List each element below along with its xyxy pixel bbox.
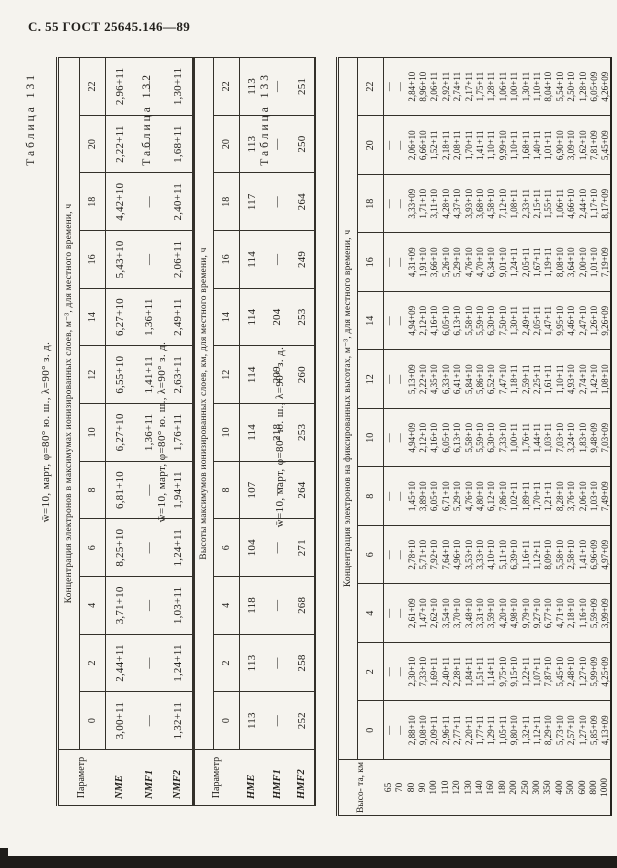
table-cell: 1,91+10 bbox=[417, 233, 428, 292]
table-cell: 3,24+10 bbox=[565, 409, 576, 468]
table-cell: 1,06+11 bbox=[497, 57, 508, 116]
table-cell: 7,33+10 bbox=[497, 409, 508, 468]
table-cell: 1,67+11 bbox=[531, 233, 542, 292]
time-header: 14 bbox=[357, 292, 383, 351]
table-cell: 1,29+11 bbox=[486, 701, 497, 760]
table-cell: 6,34+10 bbox=[486, 233, 497, 292]
table-cell: 1,16+11 bbox=[520, 526, 531, 585]
table-cell: 9,48+09 bbox=[588, 409, 599, 468]
table-133: Высо- та, кмКонцентрация электронов на ф… bbox=[336, 57, 612, 816]
table-cell: 1,14+11 bbox=[486, 643, 497, 702]
table-cell: — bbox=[395, 116, 406, 175]
table-cell: 5,86+10 bbox=[474, 350, 485, 409]
table-cell: 1,27+10 bbox=[577, 701, 588, 760]
table-cell: 2,44+11 bbox=[105, 634, 134, 692]
table-cell: 5,29+10 bbox=[452, 467, 463, 526]
table-cell: 5,58+10 bbox=[463, 409, 474, 468]
table-cell: — bbox=[383, 175, 394, 234]
table-cell: 1,02+11 bbox=[508, 467, 519, 526]
table-cell: 2,28+11 bbox=[452, 643, 463, 702]
time-header: 6 bbox=[213, 519, 239, 577]
row-label: 180 bbox=[497, 760, 508, 816]
time-header: 22 bbox=[357, 57, 383, 116]
table-cell: 3,33+09 bbox=[406, 175, 417, 234]
table-cell: 4,28+10 bbox=[440, 175, 451, 234]
table-cell: 1,62+10 bbox=[577, 116, 588, 175]
page-header: С. 55 ГОСТ 25645.146—89 bbox=[28, 19, 190, 35]
table-cell: 5,59+10 bbox=[474, 409, 485, 468]
table-cell: 4,26+09 bbox=[600, 57, 611, 116]
table-cell: 2,17+11 bbox=[463, 57, 474, 116]
table-cell: — bbox=[383, 467, 394, 526]
table-cell: 2,49+11 bbox=[520, 292, 531, 351]
table-cell: 7,12+10 bbox=[497, 175, 508, 234]
table-cell: 2,09+11 bbox=[429, 701, 440, 760]
time-header: 4 bbox=[357, 584, 383, 643]
table-cell: 6,81+10 bbox=[105, 461, 134, 519]
table-cell: 5,71+10 bbox=[417, 526, 428, 585]
table-cell: 2,25+11 bbox=[531, 350, 542, 409]
table-cell: 7,86+10 bbox=[497, 467, 508, 526]
table-cell: 7,64+10 bbox=[440, 526, 451, 585]
table-cell: 2,48+10 bbox=[565, 643, 576, 702]
time-header: 16 bbox=[357, 233, 383, 292]
table-cell: 4,16+10 bbox=[429, 292, 440, 351]
time-header: 12 bbox=[357, 350, 383, 409]
table-cell: — bbox=[395, 467, 406, 526]
table-cell: 1,10+11 bbox=[508, 116, 519, 175]
table-cell: 3,31+10 bbox=[474, 584, 485, 643]
row-label: 200 bbox=[508, 760, 519, 816]
table-cell: 8,08+10 bbox=[554, 233, 565, 292]
table-cell: 1,10+11 bbox=[486, 116, 497, 175]
table-cell: 6,90+10 bbox=[554, 116, 565, 175]
table-cell: 5,29+10 bbox=[452, 233, 463, 292]
table-cell: 1,84+11 bbox=[463, 643, 474, 702]
table-cell: 4,37+10 bbox=[452, 175, 463, 234]
table-cell: — bbox=[395, 643, 406, 702]
table-cell: 3,66+10 bbox=[429, 233, 440, 292]
table-cell: 6,30+10 bbox=[486, 409, 497, 468]
table-cell: 5,59+10 bbox=[474, 292, 485, 351]
table-cell: 6,39+10 bbox=[508, 526, 519, 585]
table-cell: 2,88+10 bbox=[406, 701, 417, 760]
time-header: 12 bbox=[79, 346, 105, 404]
span-header: Концентрация электронов на фиксированных… bbox=[337, 57, 357, 759]
time-header: 18 bbox=[79, 173, 105, 231]
row-label: 65 bbox=[383, 760, 394, 816]
table-cell: 3,64+10 bbox=[565, 233, 576, 292]
table-cell: 9,26+09 bbox=[600, 292, 611, 351]
table-cell: 4,71+10 bbox=[554, 584, 565, 643]
table-cell: 1,01+11 bbox=[543, 116, 554, 175]
table-cell: 2,05+11 bbox=[520, 233, 531, 292]
row-label: 110 bbox=[440, 760, 451, 816]
table-cell: 2,57+10 bbox=[565, 701, 576, 760]
table-cell: 4,46+10 bbox=[565, 292, 576, 351]
time-header: 22 bbox=[213, 58, 239, 116]
table-cell: 5,58+10 bbox=[554, 526, 565, 585]
table-cell: 4,70+10 bbox=[474, 233, 485, 292]
time-header: 4 bbox=[213, 577, 239, 635]
table-133-caption: Таблица 133 bbox=[258, 58, 272, 816]
table-cell: 2,33+11 bbox=[520, 175, 531, 234]
table-cell: 4,96+10 bbox=[452, 526, 463, 585]
table-cell: 2,58+10 bbox=[565, 526, 576, 585]
time-header: 4 bbox=[79, 577, 105, 635]
table-cell: 8,25+10 bbox=[105, 519, 134, 577]
table-cell: 6,05+10 bbox=[429, 467, 440, 526]
table-132-caption: Таблица 132 bbox=[140, 58, 154, 806]
table-cell: — bbox=[383, 116, 394, 175]
table-cell: 7,81+09 bbox=[588, 116, 599, 175]
table-cell: 2,74+11 bbox=[452, 57, 463, 116]
table-cell: — bbox=[383, 233, 394, 292]
table-cell: 4,25+09 bbox=[600, 643, 611, 702]
table-cell: 5,85+09 bbox=[588, 701, 599, 760]
time-header: 2 bbox=[213, 634, 239, 692]
table-cell: 2,78+10 bbox=[406, 526, 417, 585]
table-cell: — bbox=[395, 701, 406, 760]
corner-header: Высо- та, км bbox=[337, 760, 383, 816]
table-cell: 5,13+09 bbox=[406, 350, 417, 409]
table-cell: 2,18+10 bbox=[565, 584, 576, 643]
time-header: 10 bbox=[79, 404, 105, 462]
table-cell: 1,18+11 bbox=[508, 350, 519, 409]
table-cell: 2,06+10 bbox=[406, 116, 417, 175]
table-cell: 4,94+09 bbox=[406, 409, 417, 468]
table-cell: 2,96+11 bbox=[105, 58, 134, 116]
table-cell: 9,99+10 bbox=[497, 116, 508, 175]
table-cell: 1,03+10 bbox=[588, 467, 599, 526]
table-cell: 8,29+10 bbox=[543, 701, 554, 760]
table-cell: 3,53+10 bbox=[463, 526, 474, 585]
table-cell: 1,19+11 bbox=[543, 233, 554, 292]
table-cell: 1,30+11 bbox=[508, 292, 519, 351]
table-cell: 1,68+11 bbox=[520, 116, 531, 175]
table-cell: 2,22+10 bbox=[417, 350, 428, 409]
table-cell: 4,76+10 bbox=[463, 467, 474, 526]
table-cell: 1,89+11 bbox=[520, 467, 531, 526]
table-cell: 3,54+10 bbox=[440, 584, 451, 643]
table-cell: 2,06+11 bbox=[429, 57, 440, 116]
table-cell: 9,95+10 bbox=[554, 292, 565, 351]
scan-edge-corner bbox=[0, 848, 8, 860]
table-cell: 2,59+11 bbox=[520, 350, 531, 409]
table-cell: 1,24+11 bbox=[508, 233, 519, 292]
table-cell: 4,66+10 bbox=[565, 175, 576, 234]
table-cell: 9,08+10 bbox=[417, 701, 428, 760]
row-label: 400 bbox=[554, 760, 565, 816]
time-header: 10 bbox=[213, 404, 239, 462]
table-cell: 7,87+10 bbox=[543, 643, 554, 702]
time-header: 10 bbox=[357, 409, 383, 468]
table-cell: 1,06+11 bbox=[554, 175, 565, 234]
table-cell: 1,07+11 bbox=[531, 643, 542, 702]
table-cell: 5,84+10 bbox=[463, 350, 474, 409]
table-cell: 1,52+11 bbox=[429, 116, 440, 175]
table-cell: 1,41+11 bbox=[474, 116, 485, 175]
table-cell: — bbox=[383, 643, 394, 702]
table-cell: 4,58+10 bbox=[486, 175, 497, 234]
table-cell: 2,47+10 bbox=[577, 292, 588, 351]
table-cell: 1,21+11 bbox=[543, 467, 554, 526]
table-cell: 4,76+10 bbox=[463, 233, 474, 292]
table-cell: — bbox=[395, 409, 406, 468]
table-cell: — bbox=[383, 409, 394, 468]
table-cell: 1,17+10 bbox=[588, 175, 599, 234]
table-133-title: w̄=10, март, φ=80° ю. ш., λ=90° з. д. bbox=[272, 58, 288, 816]
table-cell: 1,00+11 bbox=[508, 409, 519, 468]
row-label: 800 bbox=[588, 760, 599, 816]
table-cell: 4,93+10 bbox=[565, 350, 576, 409]
table-131-caption: Таблица 131 bbox=[24, 58, 38, 806]
table-cell: 4,13+09 bbox=[600, 701, 611, 760]
table-cell: 1,00+11 bbox=[508, 57, 519, 116]
table-cell: 4,80+10 bbox=[474, 467, 485, 526]
table-cell: 2,22+11 bbox=[105, 115, 134, 173]
table-cell: 6,13+10 bbox=[452, 409, 463, 468]
table-cell: 4,35+10 bbox=[429, 350, 440, 409]
table-cell: 4,42+10 bbox=[105, 173, 134, 231]
table-cell: 2,15+11 bbox=[531, 175, 542, 234]
table-cell: 1,08+10 bbox=[600, 350, 611, 409]
table-cell: 2,61+09 bbox=[406, 584, 417, 643]
row-label: 350 bbox=[543, 760, 554, 816]
scan-edge-bottom bbox=[0, 856, 617, 868]
table-cell: 1,16+10 bbox=[577, 584, 588, 643]
row-label: 130 bbox=[463, 760, 474, 816]
table-cell: 6,71+10 bbox=[440, 467, 451, 526]
table-cell: 5,45+09 bbox=[600, 116, 611, 175]
span-header: Концентрация электронов в максимумах ион… bbox=[57, 58, 79, 750]
table-cell: 5,73+10 bbox=[554, 701, 565, 760]
table-cell: 1,26+10 bbox=[588, 292, 599, 351]
table-cell: 1,08+11 bbox=[508, 175, 519, 234]
table-cell: 1,32+11 bbox=[520, 701, 531, 760]
table-cell: 8,96+10 bbox=[417, 57, 428, 116]
table-cell: 7,50+10 bbox=[497, 292, 508, 351]
table-cell: — bbox=[395, 57, 406, 116]
row-label: 90 bbox=[417, 760, 428, 816]
table-cell: 3,71+10 bbox=[105, 577, 134, 635]
time-header: 16 bbox=[79, 231, 105, 289]
time-header: 8 bbox=[79, 461, 105, 519]
table-cell: 6,05+09 bbox=[588, 57, 599, 116]
table-cell: 5,11+10 bbox=[497, 526, 508, 585]
table-cell: 3,33+10 bbox=[474, 526, 485, 585]
row-label: 120 bbox=[452, 760, 463, 816]
table-131-title: w̄=10, март, φ=80° ю. ш., λ=90° з. д. bbox=[38, 58, 54, 806]
table-cell: 6,13+10 bbox=[452, 292, 463, 351]
table-cell: 3,99+09 bbox=[600, 584, 611, 643]
table-cell: 4,31+09 bbox=[406, 233, 417, 292]
time-header: 8 bbox=[213, 461, 239, 519]
table-cell: 1,27+10 bbox=[577, 643, 588, 702]
table-cell: 3,93+10 bbox=[463, 175, 474, 234]
time-header: 14 bbox=[79, 288, 105, 346]
time-header: 0 bbox=[213, 692, 239, 750]
table-cell: 4,97+09 bbox=[600, 526, 611, 585]
table-cell: 2,92+11 bbox=[440, 57, 451, 116]
table-cell: 7,92+10 bbox=[429, 526, 440, 585]
table-cell: 3,68+10 bbox=[474, 175, 485, 234]
table-cell: 1,28+11 bbox=[486, 57, 497, 116]
table-cell: 1,70+11 bbox=[463, 116, 474, 175]
table-cell: 3,89+10 bbox=[417, 467, 428, 526]
span-header: Высоты максимумов ионизированных слоев, … bbox=[193, 58, 213, 750]
corner-header: Параметр bbox=[57, 750, 105, 806]
table-cell: 2,08+11 bbox=[452, 116, 463, 175]
table-cell: 6,66+10 bbox=[417, 116, 428, 175]
table-cell: 1,12+11 bbox=[531, 526, 542, 585]
time-header: 0 bbox=[79, 692, 105, 750]
table-cell: 1,44+11 bbox=[531, 409, 542, 468]
table-cell: 6,41+10 bbox=[452, 350, 463, 409]
time-header: 20 bbox=[213, 115, 239, 173]
table-cell: — bbox=[383, 350, 394, 409]
time-header: 6 bbox=[79, 519, 105, 577]
table-cell: 1,12+11 bbox=[531, 701, 542, 760]
time-header: 18 bbox=[357, 175, 383, 234]
table-cell: 1,47+11 bbox=[543, 292, 554, 351]
table-cell: 9,01+10 bbox=[497, 233, 508, 292]
table-cell: 9,79+10 bbox=[520, 584, 531, 643]
table-cell: 1,41+10 bbox=[577, 526, 588, 585]
row-label: 250 bbox=[520, 760, 531, 816]
row-label: 500 bbox=[565, 760, 576, 816]
table-cell: 5,26+10 bbox=[440, 233, 451, 292]
table-cell: 5,45+10 bbox=[554, 643, 565, 702]
table-cell: 3,76+10 bbox=[565, 467, 576, 526]
table-cell: 6,27+10 bbox=[105, 404, 134, 462]
table-cell: 3,59+10 bbox=[486, 584, 497, 643]
time-header: 16 bbox=[213, 231, 239, 289]
table-cell: 1,22+11 bbox=[520, 643, 531, 702]
table-cell: 1,10+11 bbox=[554, 350, 565, 409]
table-cell: 1,03+11 bbox=[543, 409, 554, 468]
table-cell: 1,83+10 bbox=[577, 409, 588, 468]
table-cell: 2,84+10 bbox=[406, 57, 417, 116]
table-cell: 1,45+10 bbox=[406, 467, 417, 526]
table-cell: 1,71+10 bbox=[417, 175, 428, 234]
table-cell: 4,94+09 bbox=[406, 292, 417, 351]
table-cell: 9,80+10 bbox=[508, 701, 519, 760]
row-label: 140 bbox=[474, 760, 485, 816]
row-label: 160 bbox=[486, 760, 497, 816]
time-header: 2 bbox=[79, 634, 105, 692]
table-cell: 6,55+10 bbox=[105, 346, 134, 404]
table-cell: — bbox=[383, 526, 394, 585]
table-cell: — bbox=[383, 701, 394, 760]
table-cell: 1,42+10 bbox=[588, 350, 599, 409]
table-cell: 2,74+10 bbox=[577, 350, 588, 409]
row-label: 300 bbox=[531, 760, 542, 816]
table-cell: — bbox=[395, 584, 406, 643]
table-cell: 4,98+10 bbox=[508, 584, 519, 643]
table-132-title: w̄=10, март, φ=80° ю. ш., λ=90° з. д. bbox=[154, 58, 170, 806]
table-cell: 6,96+09 bbox=[588, 526, 599, 585]
time-header: 2 bbox=[357, 643, 383, 702]
table-cell: 8,17+09 bbox=[600, 175, 611, 234]
table-cell: 2,77+11 bbox=[452, 701, 463, 760]
time-header: 12 bbox=[213, 346, 239, 404]
row-label: 1000 bbox=[600, 760, 611, 816]
table-cell: — bbox=[383, 57, 394, 116]
table-cell: 2,96+11 bbox=[440, 701, 451, 760]
table-cell: 3,70+10 bbox=[452, 584, 463, 643]
table-cell: 2,20+11 bbox=[463, 701, 474, 760]
table-cell: 1,51+11 bbox=[474, 643, 485, 702]
table-cell: 5,99+09 bbox=[588, 643, 599, 702]
table-cell: 1,01+10 bbox=[588, 233, 599, 292]
row-label: NME bbox=[105, 750, 134, 806]
table-cell: 6,77+10 bbox=[543, 584, 554, 643]
table-cell: 1,28+10 bbox=[577, 57, 588, 116]
row-label: 600 bbox=[577, 760, 588, 816]
table-cell: 5,58+10 bbox=[463, 292, 474, 351]
table-cell: 6,05+10 bbox=[440, 292, 451, 351]
corner-header: Параметр bbox=[193, 750, 239, 806]
table-cell: 2,12+10 bbox=[417, 292, 428, 351]
time-header: 22 bbox=[79, 58, 105, 116]
table-cell: 6,27+10 bbox=[105, 288, 134, 346]
time-header: 6 bbox=[357, 526, 383, 585]
table-cell: 1,61+11 bbox=[543, 350, 554, 409]
table-cell: 5,43+10 bbox=[105, 231, 134, 289]
table-cell: 3,00+11 bbox=[105, 692, 134, 750]
table-cell: 6,12+10 bbox=[486, 467, 497, 526]
table-cell: 9,27+10 bbox=[531, 584, 542, 643]
table-cell: 7,03+10 bbox=[554, 409, 565, 468]
table-cell: 7,33+10 bbox=[417, 643, 428, 702]
table-cell: 4,16+10 bbox=[429, 409, 440, 468]
table-cell: 1,55+11 bbox=[543, 175, 554, 234]
time-header: 20 bbox=[79, 115, 105, 173]
table-cell: 1,40+11 bbox=[531, 116, 542, 175]
table-cell: 1,75+11 bbox=[474, 57, 485, 116]
table-cell: 1,05+11 bbox=[497, 701, 508, 760]
table-cell: 2,62+10 bbox=[429, 584, 440, 643]
table-cell: 5,59+09 bbox=[588, 584, 599, 643]
table-cell: 1,69+11 bbox=[429, 643, 440, 702]
table-cell: 8,04+10 bbox=[543, 57, 554, 116]
table-cell: 6,05+10 bbox=[440, 409, 451, 468]
table-cell: 1,10+11 bbox=[531, 57, 542, 116]
table-cell: 9,75+10 bbox=[497, 643, 508, 702]
table-cell: — bbox=[395, 233, 406, 292]
table-cell: 1,30+11 bbox=[520, 57, 531, 116]
table-cell: 6,52+10 bbox=[486, 350, 497, 409]
table-cell: 2,50+10 bbox=[565, 57, 576, 116]
time-header: 14 bbox=[213, 288, 239, 346]
table-cell: 7,03+09 bbox=[600, 409, 611, 468]
row-label: 100 bbox=[429, 760, 440, 816]
table-cell: 7,49+09 bbox=[600, 467, 611, 526]
table-cell: 3,48+10 bbox=[463, 584, 474, 643]
time-header: 18 bbox=[213, 173, 239, 231]
time-header: 20 bbox=[357, 116, 383, 175]
table-133-strip: Таблица 133 w̄=10, март, φ=80° ю. ш., λ=… bbox=[258, 58, 612, 816]
table-cell: — bbox=[395, 175, 406, 234]
table-cell: — bbox=[395, 350, 406, 409]
table-cell: 1,70+11 bbox=[531, 467, 542, 526]
table-cell: 6,30+10 bbox=[486, 292, 497, 351]
table-cell: 2,12+10 bbox=[417, 409, 428, 468]
table-cell: 2,05+11 bbox=[531, 292, 542, 351]
table-cell: — bbox=[395, 526, 406, 585]
table-cell: — bbox=[395, 292, 406, 351]
